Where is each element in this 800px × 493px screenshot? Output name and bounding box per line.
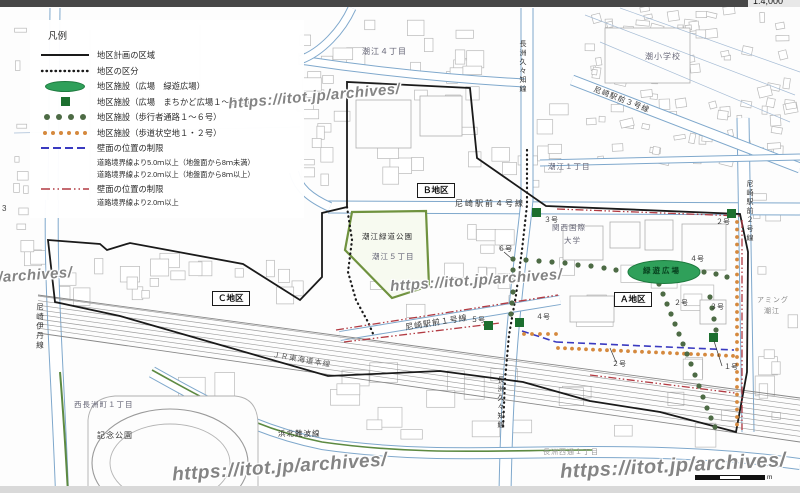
- legend-sub-blue-1: 道路境界線より5.0ｍ以上（地盤面から8ｍ未満）: [97, 158, 300, 168]
- place-aming-line2: 潮江: [764, 308, 780, 315]
- number-path6: ６号: [498, 246, 512, 253]
- place-kansai-univ-line2: 大学: [564, 237, 581, 245]
- legend-item-plaza-ellipse: 地区施設（広場 緑遊広場）: [40, 80, 300, 92]
- number-path2b: ２号: [612, 361, 626, 368]
- orange-dots-swatch: [40, 128, 90, 138]
- number-path3: ３号: [710, 304, 724, 311]
- district-c-label: Ｃ地区: [212, 291, 250, 306]
- green-dots-swatch: [40, 112, 90, 122]
- place-shioe-1chome: 潮江１丁目: [548, 163, 591, 171]
- page-side-number: 3: [2, 204, 6, 213]
- road-label-itami: 尼崎伊丹線: [36, 303, 44, 351]
- number-square5: ５号: [471, 317, 485, 324]
- legend-item-walkway-space: 地区施設（歩道状空地１・２号）: [40, 127, 300, 139]
- place-kinen-park: 記念公園: [97, 432, 133, 440]
- place-ryokudo-park: 潮江緑道公園: [362, 233, 413, 241]
- scale-note: 1:4,000: [753, 0, 783, 6]
- place-shioe-4chome: 潮江４丁目: [362, 48, 407, 56]
- place-shioe-5chome: 潮江５丁目: [372, 253, 415, 261]
- legend-item-district-division: 地区の区分: [40, 65, 300, 77]
- green-ellipse-swatch: [40, 81, 90, 92]
- legend-item-plan-boundary: 地区計画の区域: [40, 49, 300, 61]
- road-label-kukuchi-north: 長洲久々知線: [519, 40, 526, 94]
- number-square1: １号: [724, 364, 738, 371]
- number-square2: ２号: [716, 219, 730, 226]
- scale-bar: m: [695, 474, 772, 481]
- place-ushio-elementary: 潮小学校: [645, 53, 681, 61]
- road-label-hamakita: 浜北難波線: [278, 430, 321, 438]
- red-dashdot-swatch: [40, 184, 90, 194]
- number-square3: ３号: [544, 217, 558, 224]
- road-label-kukuchi-south: 長洲久々知線: [497, 376, 504, 430]
- number-square4: ４号: [536, 314, 550, 321]
- legend-item-wall-limit-blue: 壁面の位置の制限: [40, 142, 300, 154]
- legend-item-pedestrian-path: 地区施設（歩行者通路１～６号）: [40, 111, 300, 123]
- scale-bar-unit: m: [767, 474, 772, 481]
- legend-sub-red-1: 道路境界線より2.0ｍ以上: [97, 198, 300, 208]
- number-path2: ２号: [674, 300, 688, 307]
- dotted-line-swatch: [40, 66, 90, 76]
- plan-map-screenshot: 凡例 地区計画の区域 地区の区分 地区施設（広場 緑遊広場） 地区施設（広場 ま…: [0, 0, 800, 493]
- legend-item-wall-limit-red: 壁面の位置の制限: [40, 183, 300, 195]
- green-square-swatch: [40, 97, 90, 106]
- bottom-bar: [0, 486, 800, 493]
- top-bar-right: 1:4,000: [748, 0, 800, 7]
- number-path4: ４号: [690, 256, 704, 263]
- place-nagasu-nishidori: 長洲西通１丁目: [543, 449, 599, 456]
- top-bar: [0, 0, 748, 7]
- legend-panel: 凡例 地区計画の区域 地区の区分 地区施設（広場 緑遊広場） 地区施設（広場 ま…: [30, 20, 304, 218]
- place-kansai-univ-line1: 関西国際: [552, 224, 586, 232]
- road-label-ekimae4: 尼崎駅前４号線: [455, 200, 525, 208]
- place-ryokuyu-plaza: 緑遊広場: [643, 267, 681, 275]
- place-aming-line1: アミング: [757, 297, 789, 304]
- place-nishinagasu-1chome: 西長洲町１丁目: [74, 401, 134, 409]
- legend-title: 凡例: [48, 28, 300, 42]
- legend-sub-blue-2: 道路境界線より2.0ｍ以上（地盤面から8ｍ以上）: [97, 170, 300, 180]
- blue-dashed-swatch: [40, 143, 90, 153]
- district-a-label: Ａ地区: [614, 292, 652, 307]
- road-label-ekimae2: 尼崎駅前２号線: [746, 180, 753, 243]
- district-b-label: Ｂ地区: [417, 183, 455, 198]
- solid-line-swatch: [40, 50, 90, 60]
